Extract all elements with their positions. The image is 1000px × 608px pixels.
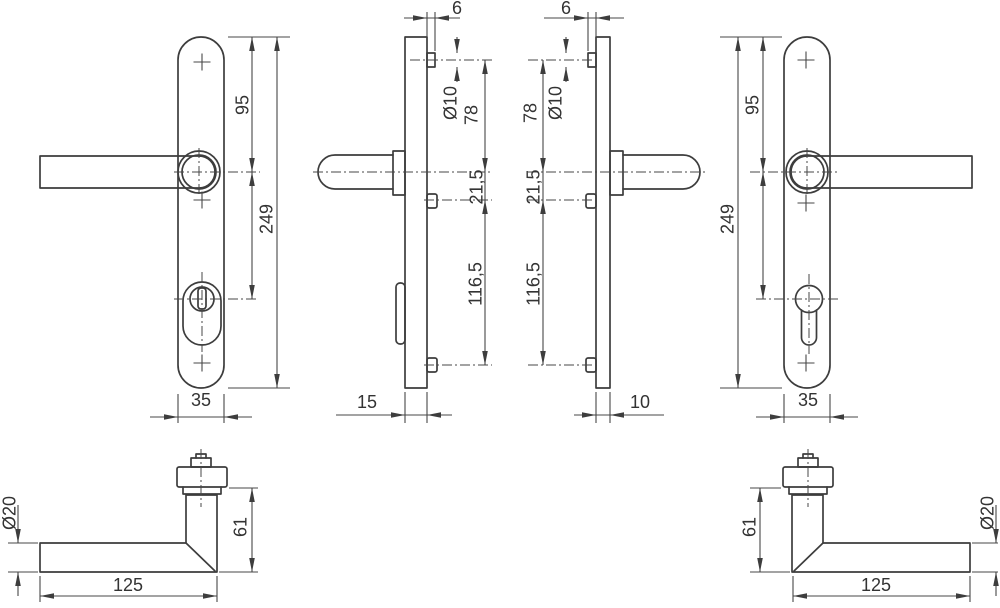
dim-text-78: 78 [461,105,481,125]
arrowhead [563,39,569,53]
fixing-stud-middle [427,194,437,208]
arrowhead [274,374,280,388]
arrowhead [956,593,970,599]
handle-collar [610,151,623,195]
arrowhead [610,412,624,418]
arrowhead [760,37,766,51]
left-handle-dimensions: Ø20 61 125 [0,488,258,602]
arrowhead [735,37,741,51]
arrowhead [454,67,460,81]
screw-cross-middle [798,195,815,212]
dim-text-6: 6 [452,0,462,18]
lever-handle-outline [792,495,970,572]
arrowhead [793,593,807,599]
dim-text-125: 125 [861,575,891,595]
arrowhead [596,15,610,21]
arrowhead [249,488,255,502]
cylinder-housing-bump [396,283,405,344]
arrowhead [454,39,460,53]
collar-step [183,487,221,494]
dim-text-d10: Ø10 [440,86,460,120]
right-plate-side-dimensions: 6 Ø10 78 21,5 116,5 10 [520,0,664,423]
dim-text-116-5: 116,5 [523,262,543,306]
drawing-canvas: 95 249 35 6 Ø10 78 21,5 116,5 [0,0,1000,603]
arrowhead [993,529,999,543]
dim-text-95: 95 [232,95,252,115]
right-handle-dimensions: 61 Ø20 125 [739,488,999,602]
dim-text-21-5: 21,5 [466,169,486,204]
screw-cross-middle [194,192,211,209]
right-plate-front-view [750,37,972,388]
arrowhead [391,412,405,418]
arrowhead [770,414,784,420]
plate-profile [405,37,427,388]
dim-text-61: 61 [230,517,250,537]
arrowhead [582,412,596,418]
arrowhead [15,529,21,543]
dim-text-d20: Ø20 [0,496,19,530]
dim-text-249: 249 [717,204,737,234]
arrowhead [164,414,178,420]
left-handle-detail-view [40,449,227,572]
right-handle-detail-view [783,449,970,572]
arrowhead [760,172,766,186]
dim-text-125: 125 [113,575,143,595]
arrowhead [427,412,441,418]
depth-dimension-lines [574,392,664,423]
dim-text-d10: Ø10 [545,86,565,120]
dim-text-95: 95 [742,95,762,115]
arrowhead [540,60,546,74]
screw-cross-top [194,54,211,71]
screw-cross-bottom [194,355,211,372]
dim-text-21-5: 21,5 [523,169,543,204]
arrowhead [249,37,255,51]
plate-profile [596,37,610,388]
dim-text-61: 61 [739,517,759,537]
bend-crease-line [794,543,823,571]
dim-text-116-5: 116,5 [465,262,485,306]
rose-collar [177,467,227,487]
screw-cross-top [798,52,815,69]
left-plate-front-view [40,37,260,388]
arrowhead [574,15,588,21]
arrowhead [435,15,449,21]
arrowhead [993,572,999,586]
arrowhead [482,60,488,74]
arrowhead [760,158,766,172]
arrowhead [735,374,741,388]
arrowhead [249,158,255,172]
arrowhead [757,488,763,502]
screw-cross-bottom [798,355,815,372]
arrowhead [249,172,255,186]
dim-text-35: 35 [191,390,211,410]
dim-text-15: 15 [357,392,377,412]
arrowhead [203,593,217,599]
arrowhead [482,351,488,365]
dim-text-78: 78 [520,103,540,123]
arrowhead [760,285,766,299]
bend-crease-line [186,543,215,571]
left-plate-side-view [313,37,492,388]
technical-drawing-svg: 95 249 35 6 Ø10 78 21,5 116,5 [0,0,1000,603]
left-plate-front-dimensions: 95 249 35 [150,37,290,423]
dim-text-10: 10 [630,392,650,412]
arrowhead [274,37,280,51]
handle-collar [393,151,405,195]
arrowhead [413,15,427,21]
dim-text-6: 6 [561,0,571,18]
right-plate-front-dimensions: 95 249 35 [717,37,858,423]
arrowhead [15,572,21,586]
depth-dimension-lines [336,392,452,423]
lever-handle-outline [40,495,217,572]
dim-text-249: 249 [256,204,276,234]
arrowhead [249,558,255,572]
arrowhead [757,558,763,572]
arrowhead [249,285,255,299]
left-plate-side-dimensions: 6 Ø10 78 21,5 116,5 15 [336,0,488,423]
arrowhead [563,67,569,81]
dim-text-35: 35 [798,390,818,410]
arrowhead [40,593,54,599]
arrowhead [830,414,844,420]
fixing-stud-middle [586,194,596,208]
arrowhead [224,414,238,420]
dim-text-d20: Ø20 [977,496,997,530]
arrowhead [540,351,546,365]
backplate-outline [784,37,830,388]
